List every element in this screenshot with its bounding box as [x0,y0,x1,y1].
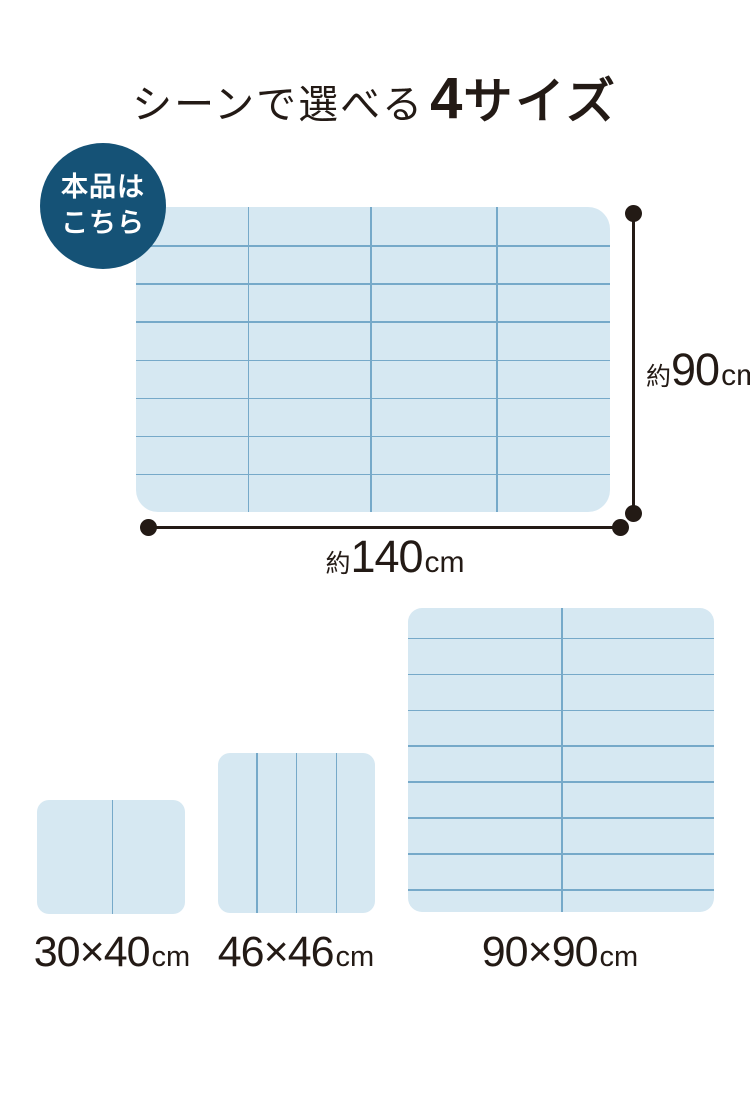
size-unit-30x40: cm [152,941,191,974]
quilt-seam-horizontal [136,321,610,323]
quilt-seam-horizontal [136,245,610,247]
size-label-90x90: 90×90 cm [450,928,670,980]
quilt-seam-vertical [561,608,563,912]
page-title: シーンで選べる 4 サイズ [0,62,750,134]
title-emphasis-text: サイズ [463,62,618,133]
mat-90x90-diagram [408,608,714,912]
quilt-seam-horizontal [408,889,714,891]
width-unit: cm [425,546,465,580]
quilt-seam-vertical [112,800,114,914]
this-product-badge: 本品は こちら [40,143,166,269]
width-approx-prefix: 約 [325,544,350,580]
quilt-seam-horizontal [136,360,610,362]
dimension-dot-right [612,519,629,536]
width-dimension-label: 約 140 cm [285,531,505,583]
product-size-infographic: シーンで選べる 4 サイズ 本品は こちら 約 90 cm 約 140 cm 3… [0,0,750,1105]
quilt-seam-horizontal [136,474,610,476]
size-unit-90x90: cm [600,941,639,974]
size-label-46x46: 46×46 cm [186,928,406,980]
mat-140x90-diagram [136,207,610,512]
quilt-seam-horizontal [408,638,714,640]
quilt-seam-horizontal [136,398,610,400]
badge-line2: こちら [61,206,145,242]
size-unit-46x46: cm [336,941,375,974]
size-value-46x46: 46×46 [218,928,334,977]
quilt-seam-horizontal [408,710,714,712]
dimension-dot-bottom [625,505,642,522]
height-unit: cm [721,359,750,393]
quilt-seam-vertical [336,753,338,913]
dimension-dot-top [625,205,642,222]
height-approx-prefix: 約 [646,357,671,393]
height-value: 90 [671,344,719,396]
quilt-seam-horizontal [408,853,714,855]
title-regular-text: シーンで選べる [132,72,424,130]
size-value-90x90: 90×90 [482,928,598,977]
height-dimension-label: 約 90 cm [646,344,750,396]
dimension-dot-left [140,519,157,536]
quilt-seam-horizontal [136,436,610,438]
quilt-seam-horizontal [408,817,714,819]
mat-30x40-diagram [37,800,185,914]
quilt-seam-horizontal [408,745,714,747]
size-value-30x40: 30×40 [34,928,150,977]
quilt-seam-horizontal [136,283,610,285]
quilt-seam-vertical [296,753,298,913]
quilt-seam-horizontal [408,781,714,783]
title-number: 4 [430,65,463,132]
badge-line1: 本品は [61,170,145,206]
width-dimension-line [148,526,620,529]
quilt-seam-vertical [256,753,258,913]
quilt-seam-horizontal [408,674,714,676]
height-dimension-line [632,213,635,513]
mat-46x46-diagram [218,753,375,913]
width-value: 140 [350,531,422,583]
